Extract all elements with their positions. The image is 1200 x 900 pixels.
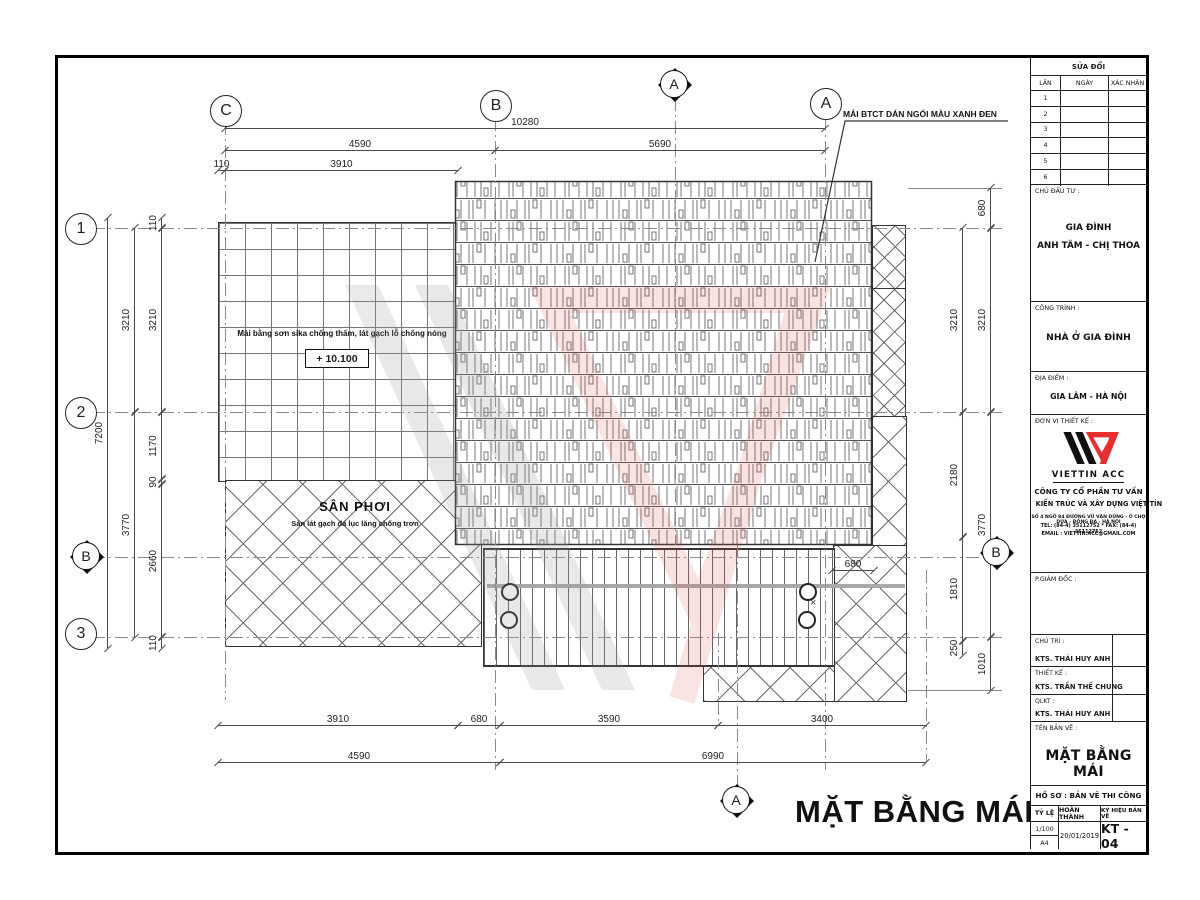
axis-line-b bbox=[495, 118, 496, 770]
dossier-row: HỒ SƠ : BẢN VẼ THI CÔNG bbox=[1031, 786, 1146, 806]
revision-header: SỬA ĐỔI bbox=[1031, 58, 1146, 76]
logo-text: VIETTIN ACC bbox=[1031, 470, 1146, 480]
axis-line-c bbox=[225, 122, 226, 700]
dimension: 1170 bbox=[161, 412, 162, 479]
section-marker-a-bottom: A bbox=[720, 784, 754, 818]
dimension: 250 bbox=[962, 641, 963, 655]
grid-bubble-c: C bbox=[210, 95, 242, 127]
company-line1: CÔNG TY CỔ PHẦN TƯ VẤN bbox=[1031, 487, 1146, 496]
roof-edge-hatch-top bbox=[872, 225, 906, 290]
revision-row-num: 5 bbox=[1031, 154, 1061, 169]
axis-line-a bbox=[825, 118, 826, 770]
revision-row-num: 4 bbox=[1031, 138, 1061, 153]
dimension: 680 bbox=[990, 188, 991, 228]
finish-date: 20/01/2019 bbox=[1059, 822, 1101, 849]
dimension: 7200 bbox=[107, 218, 108, 648]
grid-bubble-b: B bbox=[480, 90, 512, 122]
viettin-logo-icon bbox=[1057, 429, 1121, 467]
axis-line-2 bbox=[92, 412, 1005, 413]
project-name: NHÀ Ở GIA ĐÌNH bbox=[1031, 332, 1146, 343]
logo-underline bbox=[1053, 482, 1124, 483]
company-line2: KIẾN TRÚC VÀ XÂY DỰNG VIỆT TÍN bbox=[1036, 499, 1142, 507]
yard-subtitle: Sàn lát gạch đá lục lăng chống trơn bbox=[255, 519, 455, 528]
revision-col: NGÀY bbox=[1061, 76, 1109, 90]
sheet-name: MẶT BẰNG MÁI bbox=[1031, 748, 1146, 780]
revision-col: LẦN bbox=[1031, 76, 1061, 90]
sheet-grid-header: TỶ LỆ HOÀN THÀNH KÝ HIỆU BẢN VẼ bbox=[1031, 806, 1146, 822]
dimension: 3590 bbox=[500, 725, 718, 726]
dimension: 3910 bbox=[218, 725, 458, 726]
column-circle bbox=[501, 583, 519, 601]
roof-edge-hatch-low bbox=[872, 416, 907, 547]
yard-title: SÂN PHƠI bbox=[255, 499, 455, 514]
dimension: 1810 bbox=[962, 537, 963, 641]
staff-row-chutri: CHỦ TRÌ : KTS. THÁI HUY ANH bbox=[1031, 635, 1146, 667]
roof-material-note: MÁI BTCT DÁN NGÓI MÀU XANH ĐEN bbox=[843, 109, 997, 119]
tiled-roof-svg bbox=[0, 0, 1200, 900]
grid-bubble-a: A bbox=[810, 88, 842, 120]
client-line2: ANH TÂM - CHỊ THOA bbox=[1031, 241, 1146, 251]
location-name: GIA LÂM - HÀ NỘI bbox=[1031, 392, 1146, 401]
client-section: CHỦ ĐẦU TƯ : GIA ĐÌNH ANH TÂM - CHỊ THOA bbox=[1031, 185, 1146, 302]
dimension: 3210 bbox=[161, 228, 162, 412]
column-circle bbox=[500, 611, 518, 629]
column-circle bbox=[798, 611, 816, 629]
dimension: 4590 bbox=[225, 150, 495, 151]
cross-mark: × bbox=[810, 597, 816, 609]
section-marker-b-left: B bbox=[70, 540, 104, 574]
scale-value: 1/100 bbox=[1031, 822, 1058, 836]
grid-bubble-2: 2 bbox=[65, 397, 97, 429]
dimension: 2180 bbox=[962, 412, 963, 537]
grid-bubble-3: 3 bbox=[65, 618, 97, 650]
dimension: 6990 bbox=[500, 762, 926, 763]
dimension: 5690 bbox=[495, 150, 825, 151]
scale-label: TỶ LỆ bbox=[1031, 806, 1059, 821]
dimension: 10280 bbox=[225, 128, 825, 129]
project-section: CÔNG TRÌNH : NHÀ Ở GIA ĐÌNH bbox=[1031, 302, 1146, 372]
section-marker-b-right: B bbox=[980, 536, 1014, 570]
staff-row-thietke: THIẾT KẾ : KTS. TRẦN THẾ CHUNG bbox=[1031, 667, 1146, 695]
axis-line-minor bbox=[926, 570, 927, 762]
dimension: 3400 bbox=[718, 725, 926, 726]
title-block: SỬA ĐỔI LẦN NGÀY XÁC NHẬN 1 2 3 4 5 6 CH… bbox=[1030, 58, 1146, 849]
sheet-name-section: TÊN BẢN VẼ : MẶT BẰNG MÁI bbox=[1031, 722, 1146, 786]
dimension: 3910 bbox=[225, 170, 458, 171]
dimension: 3210 bbox=[962, 228, 963, 412]
dimension: 110 bbox=[161, 637, 162, 648]
grid-bubble-1: 1 bbox=[65, 213, 97, 245]
revision-row-num: 6 bbox=[1031, 170, 1061, 186]
level-marker: + 10.100 bbox=[305, 349, 369, 368]
axis-line-3 bbox=[92, 637, 1005, 638]
dimension: 680 bbox=[832, 570, 874, 571]
revision-col: XÁC NHẬN bbox=[1109, 76, 1146, 90]
paper-size: A4 bbox=[1031, 836, 1058, 849]
axis-line-minor bbox=[718, 633, 719, 725]
sheet-code: KT - 04 bbox=[1101, 822, 1146, 849]
drawing-title: MẶT BẰNG MÁI bbox=[795, 794, 1033, 830]
revision-row-num: 2 bbox=[1031, 107, 1061, 122]
axis-line-1 bbox=[92, 228, 1005, 229]
dimension: 3770 bbox=[134, 412, 135, 637]
dimension: 3770 bbox=[990, 412, 991, 637]
dimension: 680 bbox=[458, 725, 500, 726]
roof-plan-sheet: × 10280 4590 5690 110 3910 7200 3210 377… bbox=[0, 0, 1200, 900]
revision-row-num: 1 bbox=[1031, 91, 1061, 106]
dimension: 4590 bbox=[218, 762, 500, 763]
sheet-grid-values: 1/100 A4 20/01/2019 KT - 04 bbox=[1031, 822, 1146, 849]
pergola-beam bbox=[487, 584, 905, 588]
dimension: 2660 bbox=[161, 484, 162, 637]
designer-section: ĐƠN VỊ THIẾT KẾ : VIETTIN ACC CÔNG TY CỔ… bbox=[1031, 415, 1146, 573]
deputy-section: P.GIÁM ĐỐC : bbox=[1031, 573, 1146, 635]
dimension: 3210 bbox=[990, 228, 991, 412]
revision-row-num: 3 bbox=[1031, 123, 1061, 138]
section-a-line-top bbox=[675, 98, 676, 545]
pergola-slats-area bbox=[483, 548, 835, 667]
dimension: 1010 bbox=[990, 637, 991, 690]
section-a-line-bottom bbox=[737, 545, 738, 790]
staff-row-qlkt: QLKT : KTS. THÁI HUY ANH bbox=[1031, 695, 1146, 722]
revision-table: SỬA ĐỔI LẦN NGÀY XÁC NHẬN 1 2 3 4 5 6 bbox=[1031, 58, 1146, 185]
section-marker-a-top: A bbox=[658, 68, 692, 102]
roof-edge-hatch-mid bbox=[872, 288, 906, 418]
flat-roof-note: Mái bằng sơn sika chống thấm, lát gạch l… bbox=[232, 329, 452, 338]
location-section: ĐỊA ĐIỂM : GIA LÂM - HÀ NỘI bbox=[1031, 372, 1146, 415]
client-line1: GIA ĐÌNH bbox=[1031, 223, 1146, 233]
company-email: EMAIL : VIETTIN.ACC@GMAIL.COM bbox=[1031, 531, 1146, 537]
code-label: KÝ HIỆU BẢN VẼ bbox=[1101, 806, 1146, 821]
finish-label: HOÀN THÀNH bbox=[1059, 806, 1101, 821]
dimension: 3210 bbox=[134, 228, 135, 412]
section-b-line bbox=[92, 557, 985, 558]
extension-line bbox=[908, 690, 1002, 691]
